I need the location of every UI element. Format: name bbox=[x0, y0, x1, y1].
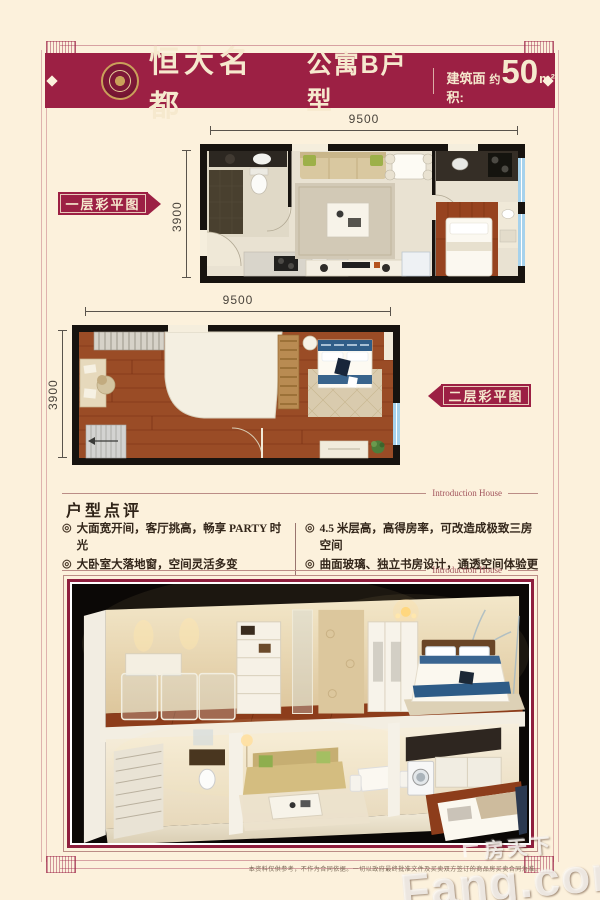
plan1-height-dimension: 3900 bbox=[170, 201, 184, 232]
brand-crest-icon bbox=[101, 62, 139, 100]
plan1-label-tag: 一层彩平图 bbox=[58, 192, 148, 215]
right-rail-ornament bbox=[553, 50, 559, 862]
scroll-cap-icon bbox=[46, 856, 76, 873]
header-separator bbox=[433, 68, 434, 94]
plan2-width-dimension: 9500 bbox=[85, 293, 391, 307]
plan2-label-tag: 二层彩平图 bbox=[441, 384, 531, 407]
plan2-height-dimline bbox=[62, 330, 63, 458]
header-band: 恒大名都 公寓B户型 建筑面积: 约 50 m² bbox=[45, 53, 555, 108]
stairs-3d bbox=[114, 743, 164, 839]
floorplan-poster: 恒大名都 公寓B户型 建筑面积: 约 50 m² 9500 3900 一层彩平图 bbox=[0, 0, 600, 900]
plan1-height-dimline bbox=[186, 150, 187, 278]
floor2-plan-drawing bbox=[72, 325, 400, 465]
plan1-width-dimline bbox=[210, 130, 518, 131]
divider-caption: Introduction House bbox=[432, 565, 502, 575]
watermark-english: Fang.com bbox=[399, 851, 600, 900]
arrow-left-icon bbox=[428, 385, 441, 407]
wardrobe bbox=[368, 622, 418, 712]
review-point: ◎ 大面宽开间，客厅挑高，畅享 PARTY 时光 bbox=[62, 521, 286, 554]
divider-caption: Introduction House bbox=[432, 488, 502, 498]
upper-shelving bbox=[237, 622, 281, 714]
review-point-text: 大面宽开间，客厅挑高，畅享 PARTY 时光 bbox=[77, 521, 286, 554]
area-approx: 约 bbox=[489, 71, 500, 87]
sofa-3d bbox=[243, 747, 346, 795]
stairs bbox=[86, 425, 126, 458]
column bbox=[388, 722, 400, 817]
bookshelf bbox=[94, 332, 164, 350]
plan2-label: 二层彩平图 bbox=[448, 386, 523, 405]
review-point-text: 4.5 米层高，高得房率，可改造成极致三房空间 bbox=[320, 521, 540, 554]
glass-partition bbox=[293, 610, 313, 714]
cut-wall bbox=[84, 610, 106, 843]
plan2-width-dimline bbox=[85, 311, 391, 312]
unit-type-title: 公寓B户型 bbox=[307, 45, 420, 117]
bed bbox=[318, 340, 372, 388]
double-height-void bbox=[165, 332, 282, 418]
area-value: 50 bbox=[501, 55, 538, 88]
3d-cutaway-render bbox=[72, 584, 529, 843]
review-title: 户型点评 bbox=[66, 497, 142, 521]
render-frame bbox=[63, 575, 538, 852]
arrow-right-icon bbox=[148, 193, 161, 215]
review-point: ◎ 4.5 米层高，高得房率，可改造成极致三房空间 bbox=[305, 521, 540, 554]
floor1-plan-drawing bbox=[200, 144, 525, 283]
diamond-ornament-icon bbox=[46, 75, 57, 86]
closet-rail bbox=[278, 335, 299, 409]
column bbox=[229, 732, 243, 835]
wallpaper-panel bbox=[318, 610, 364, 714]
plan1-width-dimension: 9500 bbox=[210, 112, 518, 126]
kitchen-3d bbox=[406, 727, 501, 795]
built-area: 建筑面积: 约 50 m² bbox=[446, 55, 555, 106]
fang-logo-icon bbox=[463, 843, 479, 857]
plan1-label: 一层彩平图 bbox=[65, 194, 140, 213]
coffee-table-3d bbox=[269, 793, 323, 819]
area-prefix: 建筑面积: bbox=[446, 68, 488, 106]
section-divider: Introduction House bbox=[62, 565, 538, 575]
side-table bbox=[303, 336, 317, 350]
left-rail-ornament bbox=[41, 50, 47, 862]
landing-cabinet bbox=[320, 441, 368, 458]
ring-bullet-icon: ◎ bbox=[305, 521, 315, 554]
chandelier bbox=[393, 599, 419, 625]
ring-bullet-icon: ◎ bbox=[62, 521, 72, 554]
plan2-height-dimension: 3900 bbox=[46, 379, 60, 410]
